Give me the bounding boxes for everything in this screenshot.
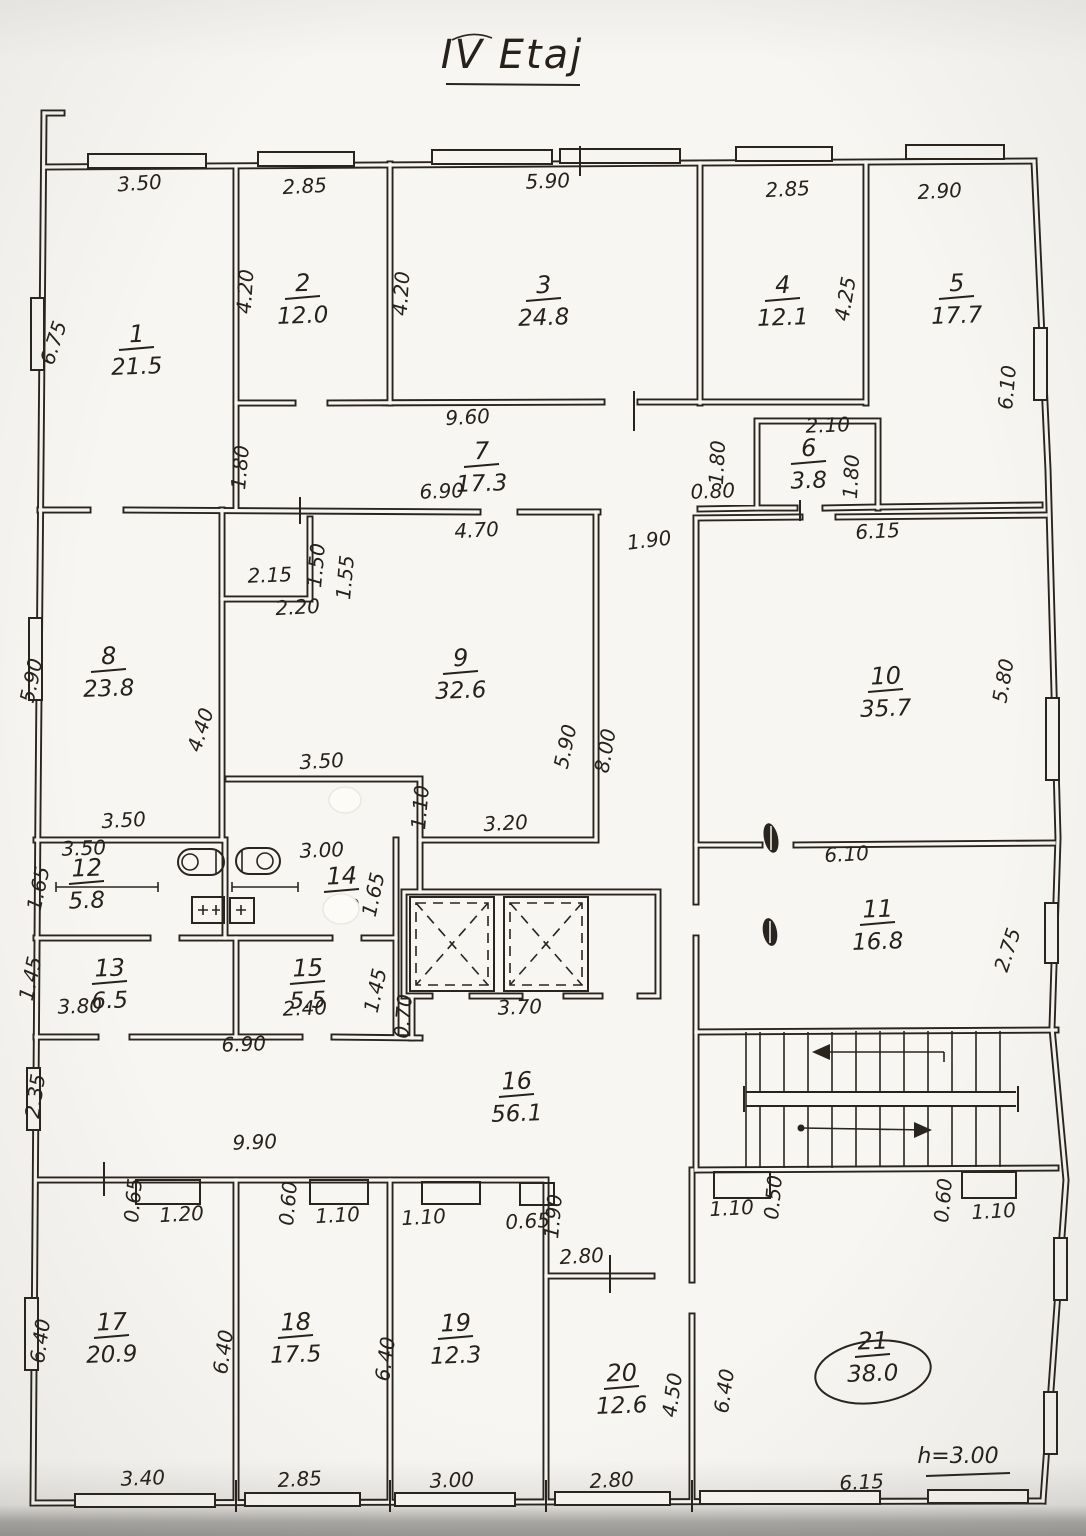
toilet-icon bbox=[236, 848, 280, 874]
room-20-area: 12.6 bbox=[596, 1392, 648, 1420]
dim-label: 3.20 bbox=[483, 810, 529, 836]
dim-label: 2.80 bbox=[589, 1467, 635, 1493]
dim-label: 2.80 bbox=[559, 1243, 605, 1269]
dim-label: 0.80 bbox=[690, 478, 735, 504]
dim-label: 2.85 bbox=[277, 1466, 323, 1492]
title-underline bbox=[446, 84, 580, 85]
dim-label: 1.65 bbox=[357, 870, 390, 919]
dim-label: 3.40 bbox=[120, 1465, 165, 1491]
dim-label: 4.20 bbox=[387, 270, 414, 316]
room-11-area: 16.8 bbox=[852, 928, 904, 956]
dim-label: 2.85 bbox=[282, 173, 328, 199]
room-1-area: 21.5 bbox=[111, 353, 163, 381]
rail-icon bbox=[232, 882, 298, 892]
dim-label: 3.70 bbox=[497, 994, 542, 1020]
room-4-number: 4 bbox=[775, 271, 791, 300]
dim-label: 6.15 bbox=[855, 518, 901, 544]
arrow-head-icon bbox=[914, 1122, 932, 1138]
room-16-area: 56.1 bbox=[491, 1100, 543, 1128]
niche bbox=[962, 1172, 1016, 1198]
room-16-number: 16 bbox=[501, 1066, 533, 1095]
room-10-number: 10 bbox=[870, 661, 902, 690]
room-17-number: 17 bbox=[96, 1307, 128, 1336]
dim-label: 2.75 bbox=[989, 925, 1026, 975]
dim-label: 3.00 bbox=[429, 1467, 474, 1493]
dim-label: 1.10 bbox=[401, 1204, 447, 1230]
room-13-number: 13 bbox=[94, 953, 126, 982]
room-2-number: 2 bbox=[295, 269, 311, 298]
room-18-number: 18 bbox=[280, 1307, 312, 1336]
dim-label: 1.50 bbox=[302, 542, 330, 588]
dim-label: 1.90 bbox=[539, 1193, 567, 1239]
dim-label: 4.40 bbox=[182, 705, 219, 755]
dim-label: 1.55 bbox=[331, 554, 359, 600]
room-7-number: 7 bbox=[474, 437, 491, 466]
room-15-number: 15 bbox=[292, 953, 324, 982]
details-layer bbox=[56, 146, 1018, 1512]
dim-label: 0.60 bbox=[274, 1180, 302, 1226]
dim-label: 1.90 bbox=[626, 525, 673, 554]
dim-label: 4.70 bbox=[454, 517, 500, 543]
room-5-area: 17.7 bbox=[931, 302, 983, 330]
dim-label: 5.80 bbox=[987, 657, 1018, 705]
dim-label: 6.40 bbox=[370, 1335, 400, 1382]
dim-label: 6.90 bbox=[419, 478, 464, 504]
staircase-icon bbox=[744, 1031, 1018, 1168]
dim-label: 2.85 bbox=[765, 176, 811, 202]
room-19-area: 12.3 bbox=[430, 1342, 482, 1370]
dim-label: 6.40 bbox=[709, 1367, 739, 1414]
dim-label: 4.25 bbox=[829, 275, 860, 323]
labels-layer: 121.5212.0324.8412.1517.763.8717.3823.89… bbox=[14, 168, 1026, 1495]
room-2-area: 12.0 bbox=[277, 302, 329, 330]
sink-icon bbox=[230, 898, 254, 923]
scanned-floorplan-page: IV Etaj 121.5212.0324.8412.1517.763.8717… bbox=[0, 0, 1086, 1536]
dim-label: 1.45 bbox=[359, 966, 392, 1015]
dim-label: 1.10 bbox=[971, 1198, 1017, 1224]
dim-label: 1.10 bbox=[406, 784, 434, 830]
niche bbox=[310, 1180, 368, 1204]
room-9-area: 32.6 bbox=[435, 677, 487, 705]
dim-label: 6.10 bbox=[824, 841, 870, 867]
room-10-area: 35.7 bbox=[860, 695, 912, 723]
dim-label: 1.10 bbox=[709, 1195, 755, 1221]
dim-label: 6.10 bbox=[993, 364, 1021, 410]
stair-down-arrow-icon bbox=[802, 1128, 928, 1130]
dim-label: 1.10 bbox=[315, 1202, 361, 1228]
dim-label: 4.50 bbox=[657, 1371, 687, 1418]
note-underline bbox=[926, 1473, 1010, 1476]
page-title: IV Etaj bbox=[441, 32, 583, 78]
dim-label: 9.90 bbox=[232, 1129, 277, 1155]
room-4-area: 12.1 bbox=[757, 304, 809, 332]
dim-label: 2.10 bbox=[805, 412, 850, 438]
room-18-area: 17.5 bbox=[270, 1341, 322, 1369]
dim-label: 0.65 bbox=[119, 1177, 147, 1223]
room-21-area: 38.0 bbox=[847, 1360, 899, 1388]
dim-label: 3.50 bbox=[299, 748, 345, 774]
niche bbox=[422, 1182, 480, 1204]
dim-label: 2.40 bbox=[282, 995, 327, 1021]
dim-label: 9.60 bbox=[445, 404, 491, 430]
room-17-area: 20.9 bbox=[86, 1341, 138, 1369]
room-3-area: 24.8 bbox=[518, 304, 570, 332]
dim-label: 1.45 bbox=[14, 954, 47, 1003]
dim-label: 6.15 bbox=[839, 1469, 885, 1495]
dim-label: 3.50 bbox=[116, 169, 162, 196]
room-8-area: 23.8 bbox=[83, 675, 135, 703]
room-8-number: 8 bbox=[101, 642, 117, 671]
dim-label: 3.50 bbox=[101, 807, 147, 833]
dim-label: 3.50 bbox=[61, 835, 106, 861]
room-14-number: 14 bbox=[326, 861, 358, 890]
elevator-shaft-icon bbox=[410, 897, 494, 991]
dim-label: 5.90 bbox=[525, 168, 570, 194]
room-6-number: 6 bbox=[801, 434, 817, 463]
dim-label: 0.60 bbox=[929, 1177, 957, 1223]
correction-blob bbox=[329, 787, 361, 813]
height-note: h=3.00 bbox=[917, 1444, 998, 1469]
dim-label: 4.20 bbox=[231, 268, 258, 314]
dim-label: 1.80 bbox=[838, 454, 864, 500]
dim-label: 0.50 bbox=[759, 1174, 787, 1220]
dim-label: 2.35 bbox=[20, 1072, 50, 1119]
elevator-shaft-icon bbox=[504, 897, 588, 991]
dim-label: 2.15 bbox=[247, 562, 292, 588]
dim-label: 6.40 bbox=[25, 1317, 55, 1364]
toilet-icon bbox=[178, 849, 224, 875]
dim-label: 5.90 bbox=[549, 722, 582, 771]
room-3-number: 3 bbox=[536, 271, 552, 300]
dim-label: 6.90 bbox=[221, 1031, 266, 1057]
dim-label: 1.65 bbox=[22, 864, 55, 913]
room-12-area: 5.8 bbox=[68, 887, 105, 914]
room-1-number: 1 bbox=[129, 320, 145, 349]
arrow-head-icon bbox=[812, 1044, 830, 1060]
room-11-number: 11 bbox=[862, 894, 894, 923]
room-9-number: 9 bbox=[453, 644, 469, 673]
dim-label: 3.80 bbox=[57, 993, 102, 1019]
correction-blob bbox=[323, 894, 359, 924]
room-19-number: 19 bbox=[440, 1308, 472, 1337]
dim-label: 1.80 bbox=[226, 444, 254, 490]
dim-label: 2.20 bbox=[275, 594, 321, 620]
room-20-number: 20 bbox=[606, 1358, 638, 1387]
dim-label: 0.70 bbox=[389, 993, 417, 1039]
dim-label: 3.00 bbox=[299, 837, 344, 863]
dim-label: 2.90 bbox=[917, 178, 963, 204]
room-5-number: 5 bbox=[949, 269, 965, 298]
drawing-title: IV Etaj bbox=[441, 32, 583, 85]
room-6-area: 3.8 bbox=[790, 467, 827, 494]
dim-label: 1.20 bbox=[159, 1201, 205, 1227]
sink-icon bbox=[192, 897, 224, 923]
floorplan-svg: IV Etaj 121.5212.0324.8412.1517.763.8717… bbox=[0, 0, 1086, 1536]
